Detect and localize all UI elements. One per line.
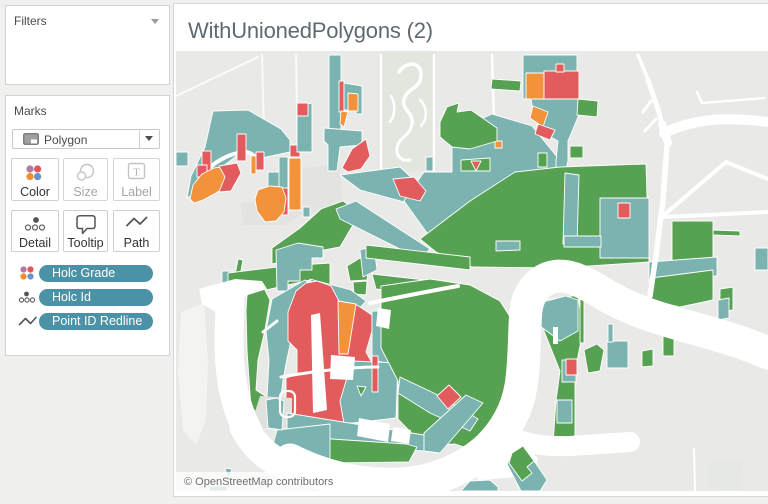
svg-text:Tooltip: Tooltip: [67, 236, 103, 250]
svg-text:Detail: Detail: [19, 236, 51, 250]
svg-text:Size: Size: [73, 185, 97, 199]
svg-text:Color: Color: [20, 185, 50, 199]
svg-text:Path: Path: [124, 236, 150, 250]
svg-text:© OpenStreetMap contributors: © OpenStreetMap contributors: [184, 476, 334, 488]
svg-text:T: T: [133, 167, 140, 179]
svg-text:Label: Label: [121, 185, 152, 199]
